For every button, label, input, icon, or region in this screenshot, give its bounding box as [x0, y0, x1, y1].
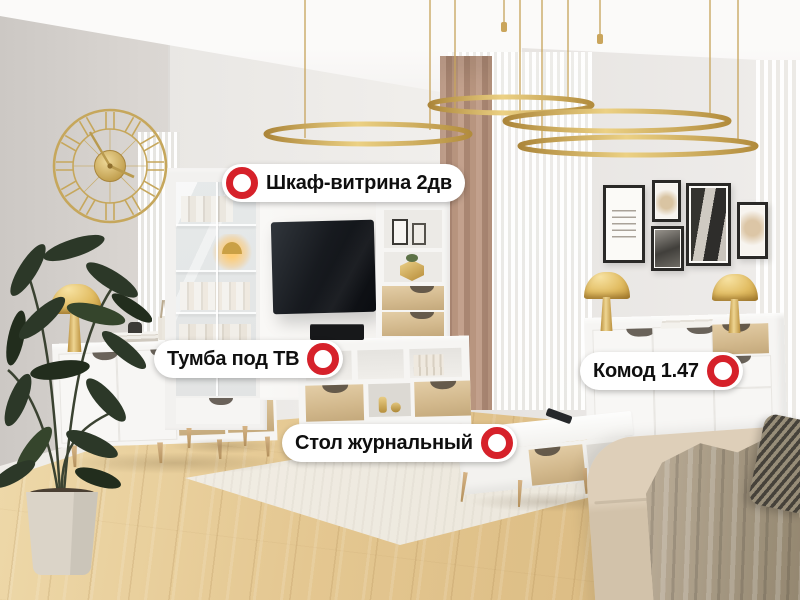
hotspot-coffee-table[interactable]: Стол журнальный: [282, 424, 517, 462]
hotspot-ring-icon[interactable]: [307, 343, 339, 375]
tvstand-open-shelf: [368, 383, 411, 417]
cabinet-floor-shadow: [170, 438, 280, 454]
hotspot-dresser[interactable]: Комод 1.47: [580, 352, 743, 390]
gold-geometric-planter: [400, 260, 424, 281]
plant-leaves: [0, 230, 152, 493]
media-player: [310, 324, 364, 340]
photo-frame-decor-2: [412, 223, 426, 245]
hotspot-tv-stand[interactable]: Тумба под ТВ: [154, 340, 343, 378]
text-art-lines: [612, 210, 636, 242]
hotspot-ring-icon[interactable]: [226, 167, 258, 199]
tvstand-cubby-2: [357, 349, 404, 379]
gold-figurine-1: [379, 397, 387, 413]
display-cabinet: [165, 168, 267, 430]
showroom-photo: Шкаф-витрина 2дв Тумба под ТВ Комод 1.47…: [0, 0, 800, 600]
flower-art-right: [741, 206, 764, 255]
gallery-frame-flower-top: [652, 180, 681, 222]
gold-figurine-2: [391, 402, 401, 412]
flower-art: [656, 184, 677, 218]
gallery-frame-photo-small: [651, 226, 684, 271]
potted-plant: [0, 222, 152, 600]
cabinet-books-top: [181, 196, 233, 222]
clock-hands: [90, 132, 134, 182]
tallunit-cubby-1: [384, 210, 442, 248]
hotspot-coffee-table-label: Стол журнальный: [295, 432, 473, 455]
striped-pillow: [747, 412, 800, 515]
gold-lamp-dresser-right-dome: [712, 274, 758, 301]
tallunit-cubby-2: [384, 252, 442, 282]
chandelier: [250, 0, 800, 170]
hotspot-tv-stand-label: Тумба под ТВ: [167, 348, 299, 371]
bw-photo-small: [655, 230, 680, 267]
wall-clock: [50, 104, 170, 228]
gallery-frame-flower-right: [737, 202, 768, 259]
tv-screen: [271, 220, 376, 315]
chandelier-rings: [266, 97, 756, 155]
bw-photo-large: [691, 188, 726, 261]
gallery-frame-photo-large: [686, 183, 731, 266]
hotspot-ring-icon[interactable]: [481, 427, 513, 459]
gold-lamp-dresser-right-stem: [728, 299, 741, 333]
hotspot-ring-icon[interactable]: [707, 355, 739, 387]
photo-frame-decor-1: [392, 219, 408, 245]
tvstand-cubby-3: [409, 348, 462, 378]
cubby-books: [413, 354, 444, 376]
plant-pot: [26, 488, 98, 575]
open-book-decor: [660, 315, 714, 329]
gallery-frame-text-art: [603, 185, 645, 263]
chandelier-bulbs: [501, 22, 603, 44]
hotspot-cabinet-label: Шкаф-витрина 2дв: [266, 172, 452, 195]
gold-lamp-dresser-left-stem: [600, 297, 613, 331]
hotspot-dresser-label: Комод 1.47: [593, 360, 699, 383]
hotspot-cabinet[interactable]: Шкаф-витрина 2дв: [222, 164, 465, 202]
cabinet-books-mid: [180, 282, 250, 310]
planter-sprig: [406, 254, 418, 262]
tv-reflection: [271, 220, 376, 315]
sofa: [584, 424, 800, 600]
